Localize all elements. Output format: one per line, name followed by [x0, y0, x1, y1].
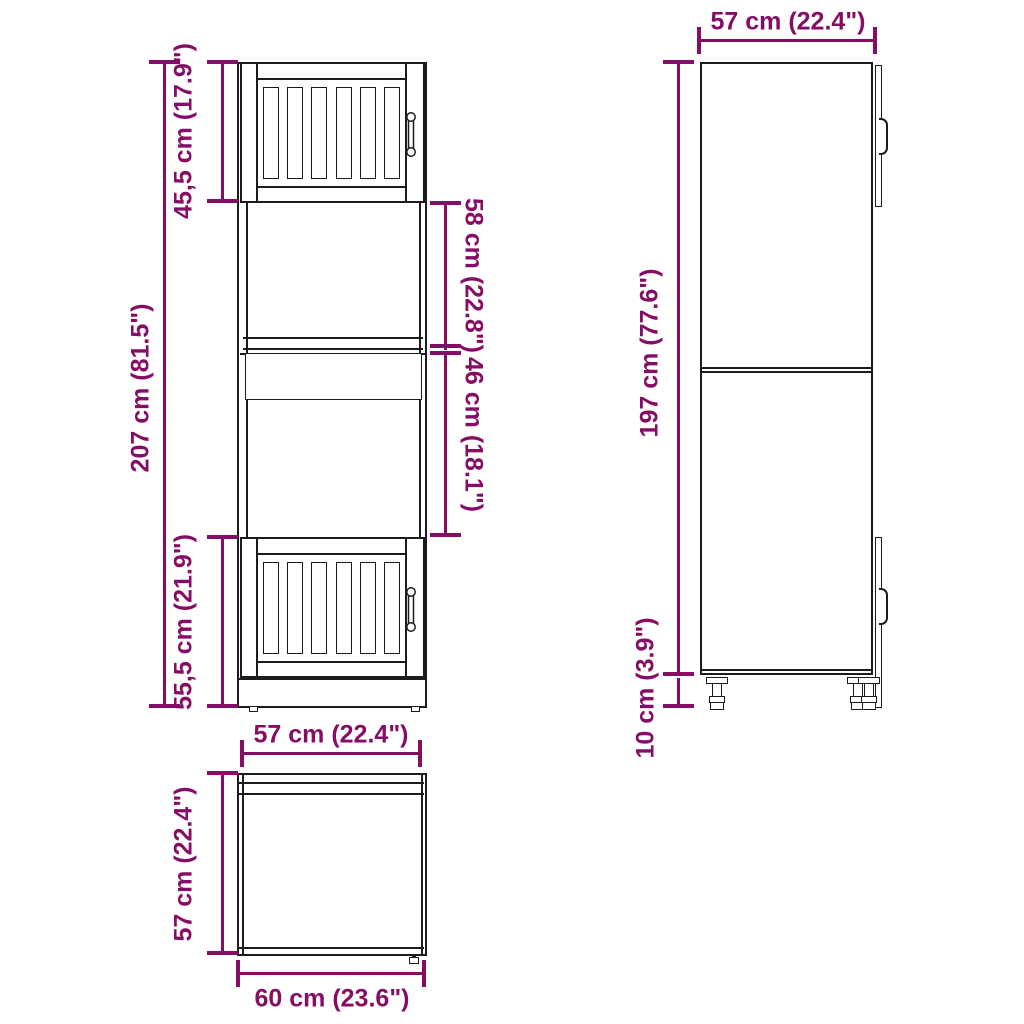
door-rail — [258, 539, 405, 555]
top-back-edge-line — [239, 793, 424, 795]
dim-line — [677, 62, 680, 676]
door-stile — [242, 64, 258, 201]
door-slat — [336, 562, 352, 654]
dim-tick — [236, 960, 240, 987]
door-handle-icon — [405, 111, 417, 158]
top-outline — [237, 773, 427, 956]
dim-line — [163, 62, 166, 706]
foot-base — [710, 702, 724, 710]
front-shelf-line — [243, 348, 423, 350]
dim-line — [444, 203, 447, 350]
dim-bottom-door-label: 55,5 cm (21.9") — [170, 534, 198, 710]
dim-tick — [207, 704, 238, 708]
front-foot-nub — [411, 706, 420, 712]
top-handle-icon — [409, 957, 419, 964]
dim-width-label: 57 cm (22.4") — [254, 721, 409, 749]
door-slat — [287, 562, 303, 654]
dim-tick — [207, 951, 238, 955]
dim-feet-height-label: 10 cm (3.9") — [632, 617, 660, 758]
door-slat — [384, 562, 400, 654]
door-rail — [258, 186, 405, 201]
door-slat — [263, 87, 279, 179]
dim-tick — [207, 60, 238, 64]
side-bottom-line — [700, 669, 873, 671]
dim-line — [238, 972, 426, 975]
dim-depth-label: 57 cm (22.4") — [711, 8, 866, 36]
cabinet-dimension-diagram: 207 cm (81.5") 45,5 cm (17.9") 55,5 cm (… — [0, 0, 1024, 1024]
dim-tick — [663, 60, 694, 64]
door-slat-panel — [263, 562, 400, 654]
door-slat — [311, 87, 327, 179]
dim-tick — [418, 740, 422, 767]
side-upper-handle-icon — [879, 118, 888, 155]
dim-line — [699, 39, 877, 42]
dim-line — [221, 537, 224, 706]
door-rail — [258, 661, 405, 676]
dim-top-door-label: 45,5 cm (17.9") — [170, 43, 198, 219]
foot-stem — [712, 683, 722, 697]
dim-tick — [697, 27, 701, 54]
dim-tick — [430, 344, 461, 348]
front-foot-nub — [249, 706, 258, 712]
dim-upper-niche-label: 58 cm (22.8") — [459, 198, 487, 353]
front-plinth — [237, 678, 427, 708]
dim-tick — [207, 199, 238, 203]
door-slat-panel — [263, 87, 400, 179]
dim-line — [677, 678, 680, 706]
dim-tick — [207, 771, 238, 775]
dim-total-height-label: 207 cm (81.5") — [127, 304, 155, 473]
door-slat — [287, 87, 303, 179]
dim-line — [242, 752, 420, 755]
dim-line — [221, 62, 224, 201]
dim-depth-label: 57 cm (22.4") — [170, 787, 198, 942]
dim-line — [444, 352, 447, 535]
dim-tick — [873, 27, 877, 54]
dim-tick — [663, 704, 694, 708]
door-slat — [360, 87, 376, 179]
top-back-edge-line — [239, 782, 424, 784]
foot-stem — [864, 683, 874, 697]
door-stile — [242, 539, 258, 676]
side-divider-line — [700, 367, 873, 369]
top-side-panel-line — [421, 773, 423, 956]
dim-tick — [422, 960, 426, 987]
dim-tick — [240, 740, 244, 767]
front-drawer-panel — [245, 353, 422, 400]
dim-body-height-label: 197 cm (77.6") — [636, 269, 664, 438]
door-slat — [336, 87, 352, 179]
dim-lower-niche-label: 46 cm (18.1") — [459, 357, 487, 512]
side-divider-line — [700, 371, 873, 373]
door-rail — [258, 64, 405, 80]
dim-tick — [430, 201, 461, 205]
cabinet-foot — [858, 677, 880, 710]
door-slat — [360, 562, 376, 654]
dim-line — [221, 773, 224, 955]
cabinet-foot — [706, 677, 728, 710]
dim-tick — [207, 535, 238, 539]
top-front-edge-line — [239, 947, 424, 949]
dim-tick — [430, 533, 461, 537]
front-shelf-line — [243, 337, 423, 339]
side-lower-handle-icon — [879, 588, 888, 625]
front-top-door — [240, 62, 425, 203]
door-slat — [311, 562, 327, 654]
top-side-panel-line — [242, 773, 244, 956]
door-slat — [384, 87, 400, 179]
foot-base — [862, 702, 876, 710]
front-bottom-door — [240, 537, 425, 678]
door-handle-icon — [405, 586, 417, 633]
door-slat — [263, 562, 279, 654]
dim-total-width-label: 60 cm (23.6") — [255, 985, 410, 1013]
dim-tick — [663, 672, 694, 676]
